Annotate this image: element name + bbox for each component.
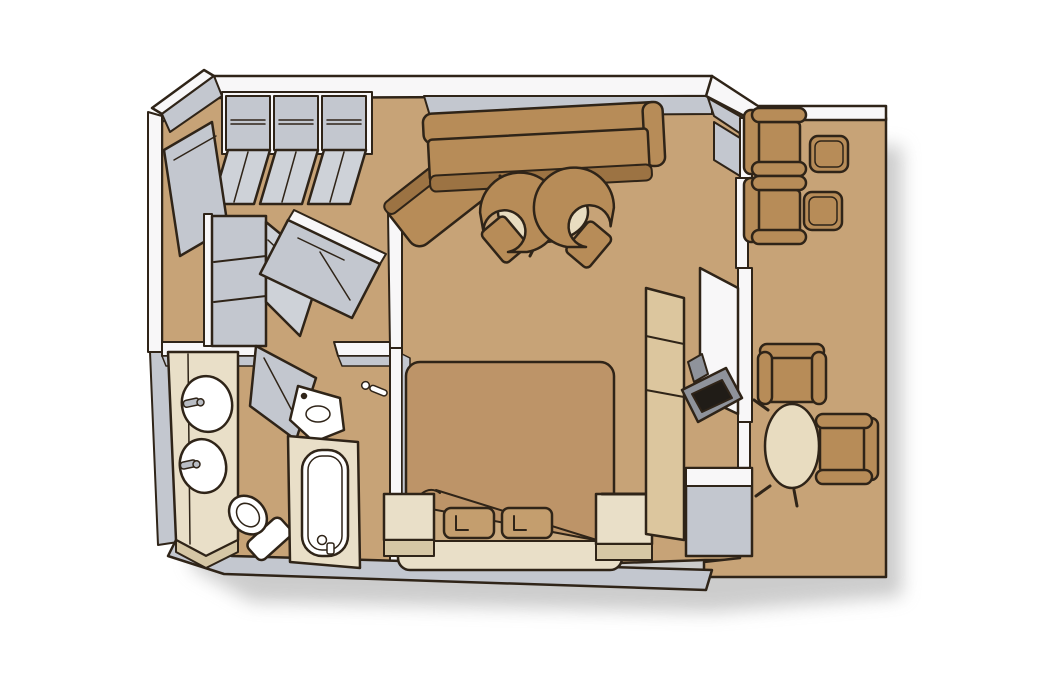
pillow-1: [444, 508, 494, 538]
tv-cabinet: [646, 288, 684, 540]
balcony-chair-top: [758, 344, 826, 404]
bathtub: [288, 436, 360, 568]
entry-wall-strip: [388, 212, 402, 348]
lounge-chair-1: [744, 108, 806, 176]
corner-wall-block-top: [686, 468, 752, 486]
balcony-chair-right: [816, 414, 878, 484]
lounge-chair-2: [744, 176, 806, 244]
pillow-2: [502, 508, 552, 538]
l-shaped-sofa: [422, 102, 666, 192]
suite-floor-plan: [0, 0, 1040, 693]
right-wall-c: [738, 422, 750, 470]
floor-plan-canvas: [0, 0, 1040, 693]
side-table-2: [804, 192, 842, 230]
nightstand-right: [596, 494, 652, 560]
left-wall: [148, 112, 162, 352]
nightstand-left: [384, 494, 434, 556]
side-table-1: [810, 136, 848, 172]
